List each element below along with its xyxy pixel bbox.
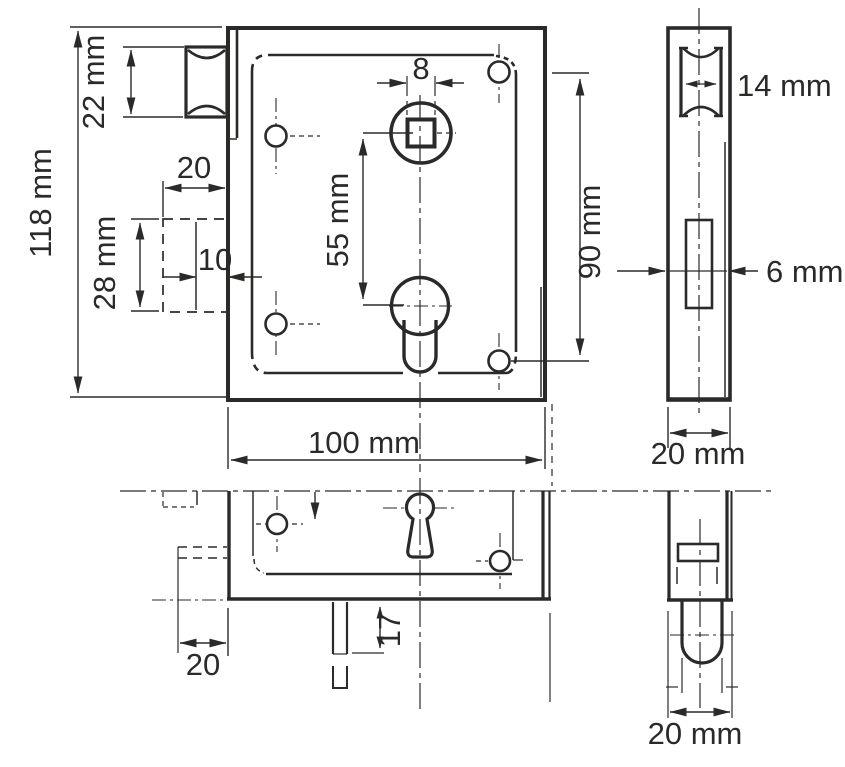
hidden-escutcheon-lines: [152, 491, 227, 653]
dim-label-spindle-protrusion: 17: [372, 613, 407, 647]
dim-label-roller-height: 22 mm: [76, 35, 111, 130]
dim-label-escutcheon-offset: 20: [186, 647, 220, 682]
screw-hole: [266, 126, 287, 147]
technical-drawing-page: 118 mm 22 mm 28 mm 20 10 8 55 mm 90 mm 1…: [0, 0, 845, 767]
cylinder-protrusion: [682, 601, 722, 663]
cylinder-side-view: [666, 491, 738, 718]
screw-hole: [267, 514, 287, 534]
roller-latch-front: [186, 47, 227, 117]
dim-label-follower-to-cylinder: 55 mm: [320, 173, 355, 268]
dim-label-slot-width: 6 mm: [766, 254, 844, 289]
dim-label-case-height: 118 mm: [23, 148, 58, 258]
screw-hole: [266, 314, 287, 335]
roller-latch-side: [679, 47, 723, 117]
dim-label-recess-height: 28 mm: [87, 216, 122, 311]
dim-label-case-width: 100 mm: [308, 425, 420, 460]
dim-label-recess-depth: 20: [177, 150, 211, 185]
lock-drawing: 118 mm 22 mm 28 mm 20 10 8 55 mm 90 mm 1…: [0, 0, 845, 767]
dim-label-roller-width: 14 mm: [737, 68, 832, 103]
screw-hole: [489, 351, 510, 372]
dim-label-screw-spacing: 90 mm: [572, 185, 607, 280]
dim-label-side-depth: 20 mm: [651, 436, 746, 471]
screw-hole: [490, 551, 510, 571]
dim-label-recess-offset: 10: [198, 242, 232, 277]
dim-label-follower-square: 8: [412, 51, 429, 86]
dim-label-cylinder-depth: 20 mm: [648, 716, 743, 751]
cylinder-slot: [678, 544, 718, 561]
screw-hole: [489, 62, 510, 83]
